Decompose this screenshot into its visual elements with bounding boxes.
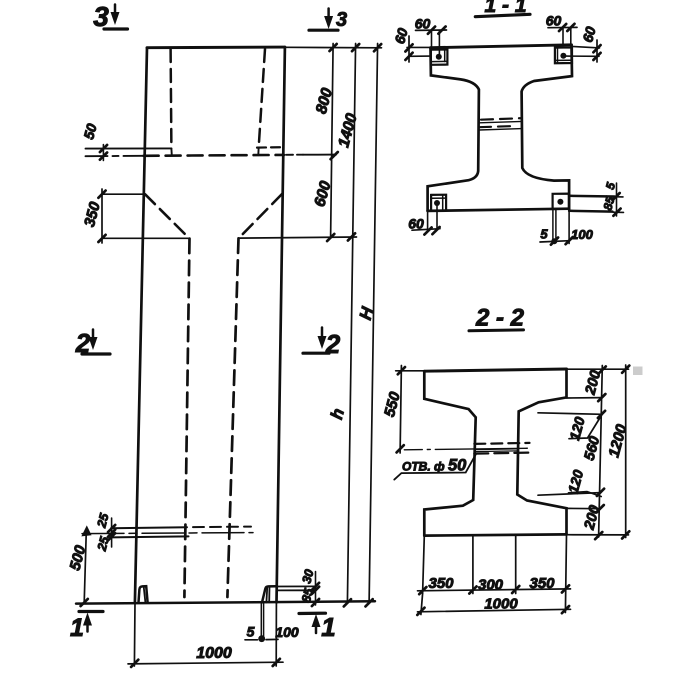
svg-text:500: 500: [67, 543, 90, 572]
svg-text:30: 30: [299, 568, 316, 585]
svg-text:350: 350: [81, 200, 104, 229]
svg-text:120: 120: [565, 468, 587, 495]
svg-text:100: 100: [275, 624, 299, 640]
svg-text:60: 60: [546, 13, 562, 29]
svg-text:2: 2: [75, 328, 91, 358]
svg-text:1200: 1200: [605, 422, 630, 459]
svg-text:100: 100: [571, 227, 593, 242]
svg-text:50: 50: [80, 122, 100, 141]
svg-text:60: 60: [391, 26, 411, 45]
svg-text:3: 3: [336, 9, 347, 31]
svg-text:1000: 1000: [196, 645, 232, 662]
svg-text:h: h: [327, 407, 348, 422]
svg-text:5: 5: [603, 181, 618, 191]
svg-text:5: 5: [540, 227, 548, 242]
svg-text:350: 350: [428, 575, 454, 592]
svg-text:1400: 1400: [335, 111, 360, 149]
svg-text:5: 5: [247, 624, 255, 640]
svg-text:1000: 1000: [484, 596, 518, 613]
svg-text:2: 2: [325, 329, 341, 359]
svg-text:300: 300: [478, 577, 504, 594]
svg-text:3: 3: [93, 1, 109, 32]
svg-text:1: 1: [321, 612, 335, 642]
svg-text:350: 350: [529, 575, 555, 592]
svg-text:60: 60: [579, 25, 599, 44]
svg-text:60: 60: [415, 16, 431, 32]
svg-text:1: 1: [70, 614, 84, 642]
svg-text:2 - 2: 2 - 2: [475, 305, 525, 332]
svg-text:25: 25: [94, 511, 112, 530]
svg-text:60: 60: [408, 216, 424, 232]
